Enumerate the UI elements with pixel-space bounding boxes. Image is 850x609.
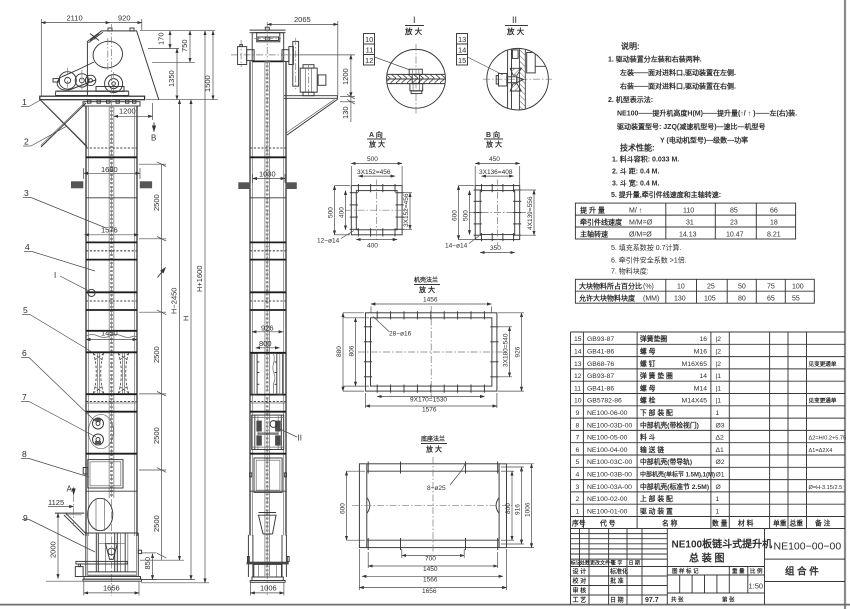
svg-text:850: 850 bbox=[143, 557, 152, 570]
svg-text:Ø: Ø bbox=[716, 484, 722, 491]
svg-text:3X136=408: 3X136=408 bbox=[479, 169, 513, 176]
svg-text:NE100-03D-00: NE100-03D-00 bbox=[587, 422, 633, 429]
svg-text:8.21: 8.21 bbox=[767, 231, 781, 238]
svg-text:审 核: 审 核 bbox=[573, 587, 587, 595]
svg-text:170: 170 bbox=[157, 32, 166, 45]
svg-text:4: 4 bbox=[25, 242, 30, 252]
svg-text:大块物料所占百分比: 大块物料所占百分比 bbox=[579, 282, 642, 291]
svg-text:110: 110 bbox=[683, 208, 694, 215]
svg-text:2110: 2110 bbox=[67, 14, 83, 23]
svg-text:放 大: 放 大 bbox=[485, 140, 502, 149]
svg-text:II: II bbox=[298, 434, 302, 443]
svg-text:1450: 1450 bbox=[101, 329, 118, 338]
svg-text:总重: 总重 bbox=[790, 519, 804, 528]
svg-text:14: 14 bbox=[574, 349, 582, 356]
svg-text:880: 880 bbox=[336, 346, 343, 357]
svg-text:设 计: 设 计 bbox=[573, 568, 587, 576]
svg-text:签 字: 签 字 bbox=[610, 560, 622, 567]
svg-text:9X170=1530: 9X170=1530 bbox=[410, 397, 447, 404]
svg-text:1125: 1125 bbox=[48, 498, 64, 507]
svg-text:底座法兰: 底座法兰 bbox=[421, 435, 445, 443]
svg-text:B 向: B 向 bbox=[486, 130, 500, 139]
svg-text:机壳法兰: 机壳法兰 bbox=[414, 276, 438, 284]
svg-text:806: 806 bbox=[349, 345, 356, 356]
svg-text:螺 栓: 螺 栓 bbox=[640, 396, 656, 405]
svg-text:GB68-76: GB68-76 bbox=[587, 361, 614, 368]
svg-text:1456: 1456 bbox=[423, 297, 438, 304]
svg-text:|1: |1 bbox=[716, 398, 722, 405]
svg-text:1: 1 bbox=[716, 496, 720, 503]
svg-text:350: 350 bbox=[490, 245, 501, 252]
svg-text:I: I bbox=[413, 15, 416, 25]
svg-text:标准化: 标准化 bbox=[609, 568, 628, 576]
svg-text:说明:: 说明: bbox=[621, 41, 640, 51]
svg-text:926: 926 bbox=[515, 346, 522, 357]
svg-text:9: 9 bbox=[576, 410, 580, 417]
svg-text:55: 55 bbox=[792, 296, 800, 303]
svg-text:Δ1: Δ1 bbox=[716, 447, 725, 454]
svg-text:Δ1=Δ2X4: Δ1=Δ2X4 bbox=[809, 448, 833, 454]
svg-text:下 部 装 配: 下 部 装 配 bbox=[640, 408, 673, 417]
svg-text:10.47: 10.47 bbox=[726, 231, 744, 238]
svg-text:600: 600 bbox=[340, 503, 347, 514]
svg-text:15: 15 bbox=[574, 336, 582, 343]
svg-text:M16X65: M16X65 bbox=[682, 361, 708, 368]
svg-text:500: 500 bbox=[367, 156, 378, 163]
svg-text:12: 12 bbox=[365, 56, 373, 65]
svg-text:1006: 1006 bbox=[525, 502, 532, 517]
svg-text:(%): (%) bbox=[643, 284, 654, 291]
svg-text:5: 5 bbox=[23, 305, 28, 315]
svg-text:右装——面对进料口,驱动装置在右侧.: 右装——面对进料口,驱动装置在右侧. bbox=[619, 82, 736, 91]
svg-text:1350: 1350 bbox=[167, 70, 176, 87]
svg-text:1656: 1656 bbox=[103, 583, 120, 592]
svg-text:代 号: 代 号 bbox=[599, 519, 616, 528]
svg-text:65: 65 bbox=[767, 296, 775, 303]
svg-text:1450: 1450 bbox=[423, 566, 438, 573]
svg-text:弹簧垫圈: 弹簧垫圈 bbox=[640, 334, 667, 343]
svg-text:|2: |2 bbox=[716, 361, 722, 368]
svg-text:M16: M16 bbox=[694, 349, 707, 356]
svg-text:Y (电动机型号)—级数—功率: Y (电动机型号)—级数—功率 bbox=[660, 136, 748, 145]
svg-text:NE100-03B-00: NE100-03B-00 bbox=[587, 472, 632, 479]
svg-text:2500: 2500 bbox=[152, 427, 161, 444]
svg-text:12: 12 bbox=[574, 373, 582, 380]
svg-text:中部机壳(标准节 2.5M): 中部机壳(标准节 2.5M) bbox=[640, 482, 709, 491]
svg-text:GB41-86: GB41-86 bbox=[587, 349, 614, 356]
svg-text:23: 23 bbox=[730, 219, 738, 226]
svg-text:日 期: 日 期 bbox=[610, 596, 624, 604]
svg-text:6: 6 bbox=[576, 447, 580, 454]
svg-text:放 大: 放 大 bbox=[425, 445, 442, 454]
svg-text:450: 450 bbox=[489, 156, 500, 163]
svg-text:500: 500 bbox=[328, 207, 335, 218]
svg-text:Ø3: Ø3 bbox=[716, 422, 725, 429]
svg-text:4X139=556: 4X139=556 bbox=[527, 196, 534, 230]
svg-text:主轴转速: 主轴转速 bbox=[580, 229, 608, 238]
svg-text:3. 斗 宽: 0.4 M.: 3. 斗 宽: 0.4 M. bbox=[612, 179, 660, 188]
svg-text:螺 钉: 螺 钉 bbox=[640, 359, 656, 368]
svg-text:105: 105 bbox=[704, 296, 716, 303]
svg-text:单重: 单重 bbox=[773, 519, 787, 528]
svg-text:920: 920 bbox=[118, 14, 131, 23]
svg-text:3X152=456: 3X152=456 bbox=[403, 193, 410, 227]
svg-text:13: 13 bbox=[574, 361, 582, 368]
svg-text:(MM): (MM) bbox=[643, 296, 659, 303]
svg-text:6: 6 bbox=[22, 348, 27, 358]
svg-text:第 张: 第 张 bbox=[722, 596, 735, 604]
svg-text:7. 物料块度:: 7. 物料块度: bbox=[611, 267, 649, 276]
svg-text:2065: 2065 bbox=[294, 15, 311, 24]
svg-text:7: 7 bbox=[22, 392, 27, 402]
svg-text:校 对: 校 对 bbox=[573, 577, 587, 585]
svg-text:10: 10 bbox=[574, 398, 582, 405]
svg-text:日 期: 日 期 bbox=[629, 560, 640, 567]
svg-text:总 装 图: 总 装 图 bbox=[689, 552, 725, 565]
svg-text:H: H bbox=[182, 316, 191, 321]
svg-text:2. 斗 距: 0.4 M.: 2. 斗 距: 0.4 M. bbox=[612, 167, 660, 176]
svg-text:2500: 2500 bbox=[152, 194, 161, 211]
svg-text:1. 驱动装置分左装和右装两种.: 1. 驱动装置分左装和右装两种. bbox=[608, 55, 702, 64]
svg-text:1. 料斗容积: 0.033 M.: 1. 料斗容积: 0.033 M. bbox=[612, 155, 679, 164]
svg-text:5: 5 bbox=[576, 459, 580, 466]
svg-text:14.13: 14.13 bbox=[679, 231, 697, 238]
svg-text:Ø1: Ø1 bbox=[716, 472, 725, 479]
svg-text:2: 2 bbox=[24, 137, 29, 147]
svg-text:3X180=540: 3X180=540 bbox=[503, 333, 510, 367]
svg-text:NE100-02-00: NE100-02-00 bbox=[587, 496, 628, 503]
svg-text:工 艺: 工 艺 bbox=[573, 596, 587, 604]
svg-text:II: II bbox=[512, 15, 517, 25]
svg-text:9: 9 bbox=[23, 513, 28, 523]
svg-text:1: 1 bbox=[22, 97, 27, 107]
svg-text:130: 130 bbox=[341, 106, 350, 119]
svg-text:NE100-03A-00: NE100-03A-00 bbox=[587, 484, 632, 491]
svg-text:M14: M14 bbox=[694, 385, 707, 392]
svg-text:14: 14 bbox=[458, 46, 466, 55]
svg-text:GB93-87: GB93-87 bbox=[587, 336, 614, 343]
svg-text:放 大: 放 大 bbox=[368, 140, 385, 149]
svg-text:比 例: 比 例 bbox=[750, 567, 763, 575]
svg-text:NE100-03C-00: NE100-03C-00 bbox=[587, 459, 633, 466]
svg-text:批 准: 批 准 bbox=[610, 577, 624, 585]
svg-text:8: 8 bbox=[576, 422, 580, 429]
svg-text:97.7: 97.7 bbox=[645, 597, 659, 604]
svg-text:130: 130 bbox=[674, 296, 686, 303]
svg-text:2500: 2500 bbox=[152, 515, 161, 532]
svg-text:2000: 2000 bbox=[49, 541, 58, 558]
svg-text:中部机壳(带检视门): 中部机壳(带检视门) bbox=[640, 420, 699, 429]
svg-text:800: 800 bbox=[259, 339, 272, 348]
svg-text:Ø/M=Ø: Ø/M=Ø bbox=[629, 231, 652, 238]
svg-text:700: 700 bbox=[425, 556, 436, 563]
svg-text:14−ø14: 14−ø14 bbox=[445, 243, 468, 250]
svg-text:Ø2: Ø2 bbox=[716, 459, 725, 466]
svg-text:技术性能:: 技术性能: bbox=[620, 143, 655, 153]
svg-text:7: 7 bbox=[576, 435, 580, 442]
svg-text:15: 15 bbox=[458, 56, 466, 65]
svg-text:NE100板链斗式提升机: NE100板链斗式提升机 bbox=[672, 538, 773, 551]
svg-text:M/M=Ø: M/M=Ø bbox=[629, 219, 653, 226]
svg-text:11: 11 bbox=[574, 385, 581, 392]
svg-text:5. 提升量,牵引件线速度和主轴转速:: 5. 提升量,牵引件线速度和主轴转速: bbox=[611, 190, 721, 199]
svg-text:916: 916 bbox=[515, 504, 522, 515]
svg-text:中部机壳(带导轨): 中部机壳(带导轨) bbox=[640, 457, 692, 466]
svg-text:400: 400 bbox=[339, 207, 346, 218]
svg-text:螺 母: 螺 母 bbox=[640, 383, 656, 392]
svg-text:100: 100 bbox=[792, 284, 804, 291]
svg-text:14: 14 bbox=[699, 373, 707, 380]
svg-text:NE100-06-00: NE100-06-00 bbox=[587, 410, 628, 417]
svg-text:放 大: 放 大 bbox=[506, 26, 525, 36]
svg-text:螺 母: 螺 母 bbox=[640, 347, 656, 356]
svg-text:1576: 1576 bbox=[422, 406, 437, 413]
svg-text:3X152=456: 3X152=456 bbox=[357, 169, 391, 176]
svg-text:11: 11 bbox=[366, 46, 374, 55]
svg-text:10: 10 bbox=[677, 284, 685, 291]
svg-text:1200: 1200 bbox=[341, 68, 350, 85]
svg-text:GB93-87: GB93-87 bbox=[587, 373, 614, 380]
svg-text:放 大: 放 大 bbox=[418, 285, 435, 294]
svg-text:NE100-01-00: NE100-01-00 bbox=[587, 508, 628, 515]
svg-text:M/ ↑: M/ ↑ bbox=[629, 208, 642, 215]
svg-text:|2: |2 bbox=[716, 336, 722, 343]
svg-text:750: 750 bbox=[180, 39, 189, 52]
svg-text:图 样 标 记: 图 样 标 记 bbox=[672, 567, 699, 575]
svg-text:中部机壳(单标节 1.5M),1(M): 中部机壳(单标节 1.5M),1(M) bbox=[640, 471, 715, 479]
svg-text:NE100-05-00: NE100-05-00 bbox=[587, 435, 628, 442]
svg-text:16: 16 bbox=[699, 336, 707, 343]
svg-text:80: 80 bbox=[738, 296, 746, 303]
svg-text:GB41-86: GB41-86 bbox=[587, 385, 614, 392]
svg-text:1:50: 1:50 bbox=[749, 582, 764, 591]
svg-text:|1: |1 bbox=[716, 385, 722, 392]
svg-text:输 送 链: 输 送 链 bbox=[640, 445, 664, 454]
svg-text:NE100−00−00: NE100−00−00 bbox=[774, 541, 842, 553]
svg-text:1200: 1200 bbox=[119, 107, 136, 116]
svg-text:I: I bbox=[54, 271, 56, 280]
svg-text:1030: 1030 bbox=[259, 169, 276, 178]
svg-text:500: 500 bbox=[463, 210, 470, 221]
svg-text:B: B bbox=[151, 134, 156, 143]
svg-text:12−ø14: 12−ø14 bbox=[317, 238, 340, 245]
svg-text:1006: 1006 bbox=[260, 583, 277, 592]
svg-text:见变更通单: 见变更通单 bbox=[809, 397, 837, 405]
svg-text:5. 填充系数按 0.7计算.: 5. 填充系数按 0.7计算. bbox=[611, 243, 681, 252]
svg-text:3: 3 bbox=[24, 188, 29, 198]
svg-text:66: 66 bbox=[770, 208, 778, 215]
svg-text:1680: 1680 bbox=[101, 165, 118, 174]
svg-text:1656: 1656 bbox=[422, 588, 437, 595]
svg-text:名 称: 名 称 bbox=[662, 519, 678, 528]
svg-text:2500: 2500 bbox=[152, 346, 161, 363]
svg-text:Ø=H-3.15/2.5: Ø=H-3.15/2.5 bbox=[809, 485, 843, 491]
svg-text:10: 10 bbox=[365, 35, 373, 44]
svg-text:A: A bbox=[67, 485, 73, 494]
svg-text:85: 85 bbox=[730, 208, 738, 215]
svg-text:GB5782-86: GB5782-86 bbox=[587, 398, 622, 405]
svg-text:Δ2: Δ2 bbox=[716, 435, 725, 442]
svg-text:2. 机型表示法:: 2. 机型表示法: bbox=[608, 95, 653, 104]
svg-text:H+1600: H+1600 bbox=[195, 266, 204, 292]
svg-text:4: 4 bbox=[576, 472, 580, 479]
svg-text:25: 25 bbox=[707, 284, 715, 291]
svg-text:1: 1 bbox=[576, 508, 580, 515]
svg-text:数 量: 数 量 bbox=[712, 519, 728, 528]
svg-text:28−ø16: 28−ø16 bbox=[389, 331, 412, 338]
svg-text:见变更通单: 见变更通单 bbox=[809, 360, 837, 368]
svg-text:左装——面对进料口,驱动装置在左侧.: 左装——面对进料口,驱动装置在左侧. bbox=[619, 68, 736, 77]
svg-text:Δ2=H/0.2+5.75: Δ2=H/0.2+5.75 bbox=[809, 436, 847, 442]
svg-text:M14X45: M14X45 bbox=[682, 398, 708, 405]
svg-text:1566: 1566 bbox=[423, 577, 438, 584]
svg-text:2: 2 bbox=[576, 496, 580, 503]
svg-text:A 向: A 向 bbox=[369, 130, 383, 139]
svg-text:序号: 序号 bbox=[572, 519, 586, 528]
svg-text:1500: 1500 bbox=[203, 75, 212, 92]
svg-text:600: 600 bbox=[452, 210, 459, 221]
svg-text:8−ø25: 8−ø25 bbox=[427, 485, 446, 492]
svg-text:NE100——提升机高度H(M)——提升量(↑/ ↑ )——: NE100——提升机高度H(M)——提升量(↑/ ↑ )——左(右)装. bbox=[617, 109, 797, 118]
svg-text:NE100-04-00: NE100-04-00 bbox=[587, 447, 628, 454]
svg-text:3: 3 bbox=[576, 484, 580, 491]
svg-text:允许大块物料块度: 允许大块物料块度 bbox=[578, 294, 636, 303]
svg-text:料 斗: 料 斗 bbox=[640, 433, 656, 442]
svg-text:1: 1 bbox=[716, 508, 720, 515]
svg-text:6. 牵引件安全系数 >1倍.: 6. 牵引件安全系数 >1倍. bbox=[611, 256, 687, 265]
svg-text:驱动装置型号: JZQ(减速机型号)—速比—机型号: 驱动装置型号: JZQ(减速机型号)—速比—机型号 bbox=[617, 122, 766, 131]
svg-text:13: 13 bbox=[458, 35, 466, 44]
svg-text:31: 31 bbox=[686, 219, 694, 226]
svg-text:牵引件线速度: 牵引件线速度 bbox=[580, 217, 623, 226]
svg-text:18: 18 bbox=[770, 219, 778, 226]
svg-text:组 合 件: 组 合 件 bbox=[785, 566, 819, 578]
svg-text:800: 800 bbox=[505, 503, 512, 514]
svg-text:上 部 装 配: 上 部 装 配 bbox=[640, 494, 673, 503]
svg-text:弹 簧 垫 圈: 弹 簧 垫 圈 bbox=[640, 371, 673, 380]
svg-text:|1: |1 bbox=[716, 373, 722, 380]
svg-text:1: 1 bbox=[716, 410, 720, 417]
svg-text:400: 400 bbox=[367, 243, 378, 250]
svg-text:H−2450: H−2450 bbox=[170, 288, 179, 314]
svg-text:|2: |2 bbox=[716, 349, 722, 356]
svg-text:备 注: 备 注 bbox=[814, 519, 831, 528]
svg-text:共 张: 共 张 bbox=[671, 596, 684, 604]
svg-text:材 料: 材 料 bbox=[738, 519, 754, 528]
svg-text:75: 75 bbox=[767, 284, 775, 291]
svg-text:50: 50 bbox=[738, 284, 746, 291]
svg-text:提 升 量: 提 升 量 bbox=[579, 206, 605, 215]
svg-text:驱 动 装 置: 驱 动 装 置 bbox=[640, 506, 673, 515]
svg-text:重 量: 重 量 bbox=[732, 567, 745, 575]
svg-text:放 大: 放 大 bbox=[404, 26, 423, 36]
svg-text:926: 926 bbox=[261, 323, 274, 332]
svg-text:8: 8 bbox=[22, 449, 27, 459]
